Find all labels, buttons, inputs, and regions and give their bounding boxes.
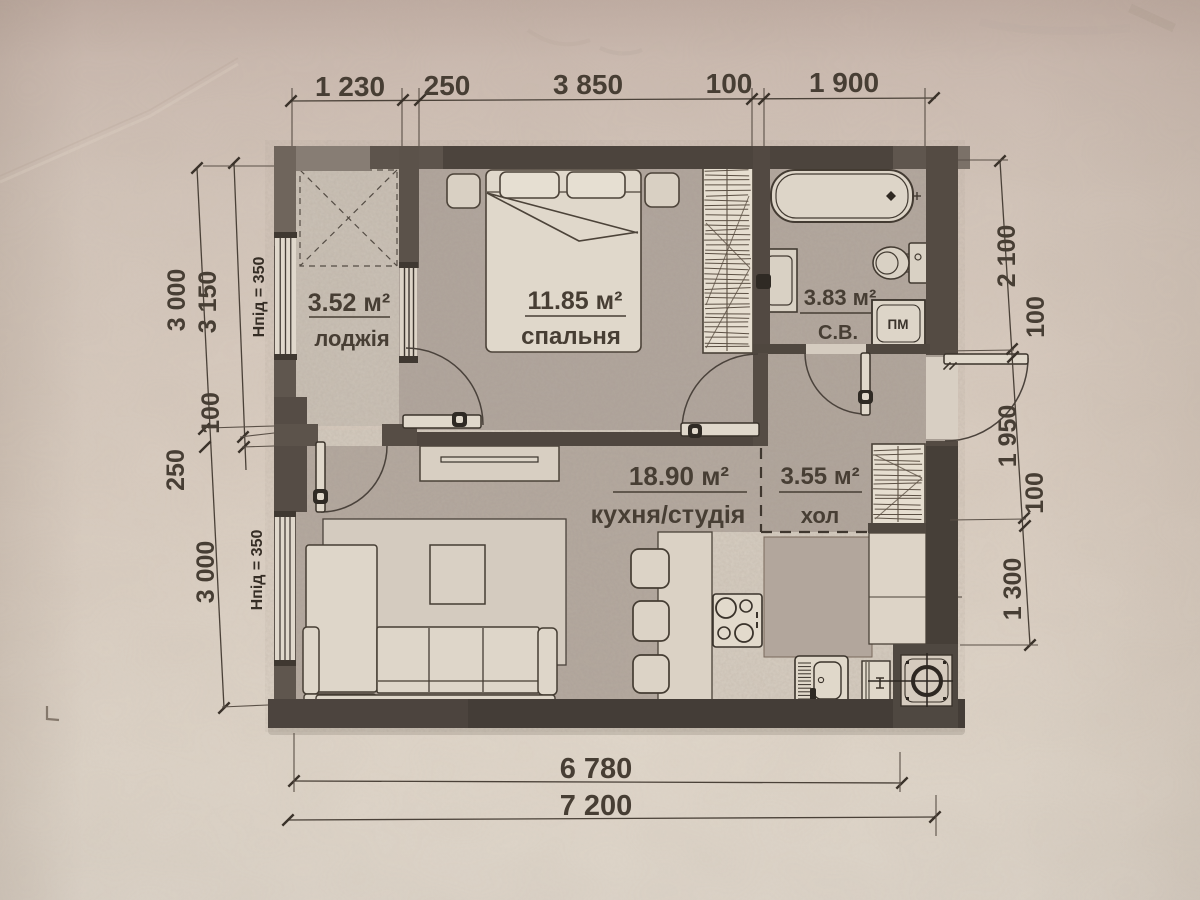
svg-text:100: 100 [706,68,753,99]
svg-text:ПМ: ПМ [888,317,909,332]
svg-text:1 300: 1 300 [999,558,1027,621]
svg-text:250: 250 [162,449,190,491]
svg-text:лоджія: лоджія [314,326,389,351]
svg-text:хол: хол [801,503,840,528]
svg-text:2 100: 2 100 [993,225,1021,288]
svg-text:спальня: спальня [521,323,621,350]
svg-text:6 780: 6 780 [560,753,633,785]
svg-text:Hпід = 350: Hпід = 350 [251,257,268,338]
svg-text:3.83 м²: 3.83 м² [804,285,877,310]
svg-text:кухня/студія: кухня/студія [591,501,746,529]
svg-text:С.В.: С.В. [818,322,858,344]
svg-text:100: 100 [1021,472,1049,514]
svg-text:3 150: 3 150 [194,271,222,334]
svg-text:3.52 м²: 3.52 м² [308,289,390,317]
svg-text:18.90 м²: 18.90 м² [629,461,730,491]
svg-text:100: 100 [1022,296,1050,338]
svg-text:7 200: 7 200 [560,790,633,822]
svg-text:3 000: 3 000 [163,269,191,332]
svg-text:1 950: 1 950 [994,405,1022,468]
svg-text:3.55 м²: 3.55 м² [780,463,859,490]
svg-text:250: 250 [424,70,471,101]
svg-text:1 900: 1 900 [809,67,879,98]
svg-text:Hпід = 350: Hпід = 350 [249,530,266,611]
svg-text:1 230: 1 230 [315,71,385,102]
svg-text:3 000: 3 000 [192,541,220,604]
svg-text:11.85 м²: 11.85 м² [528,287,623,315]
svg-text:100: 100 [197,392,225,434]
svg-text:3 850: 3 850 [553,69,623,100]
